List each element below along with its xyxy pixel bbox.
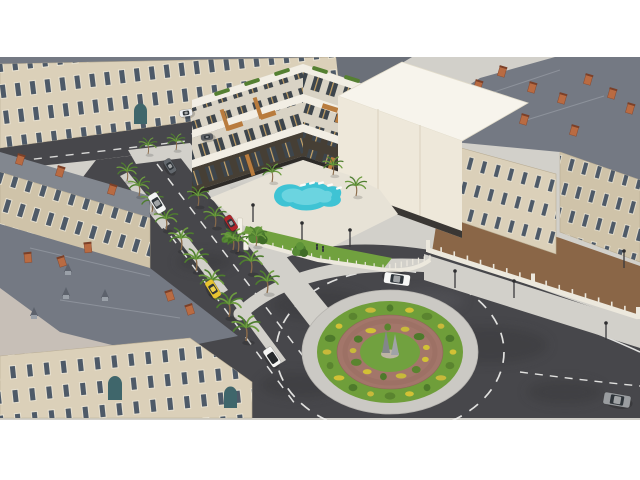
roundabout-island — [302, 290, 478, 414]
aerial-render — [0, 0, 640, 480]
letterbox-top — [0, 0, 640, 57]
letterbox-bottom — [0, 420, 640, 480]
arched-door-teal — [134, 104, 147, 124]
arched-door-teal-3 — [224, 387, 237, 408]
arched-door-teal-2 — [108, 376, 122, 400]
render-canvas — [0, 0, 640, 480]
